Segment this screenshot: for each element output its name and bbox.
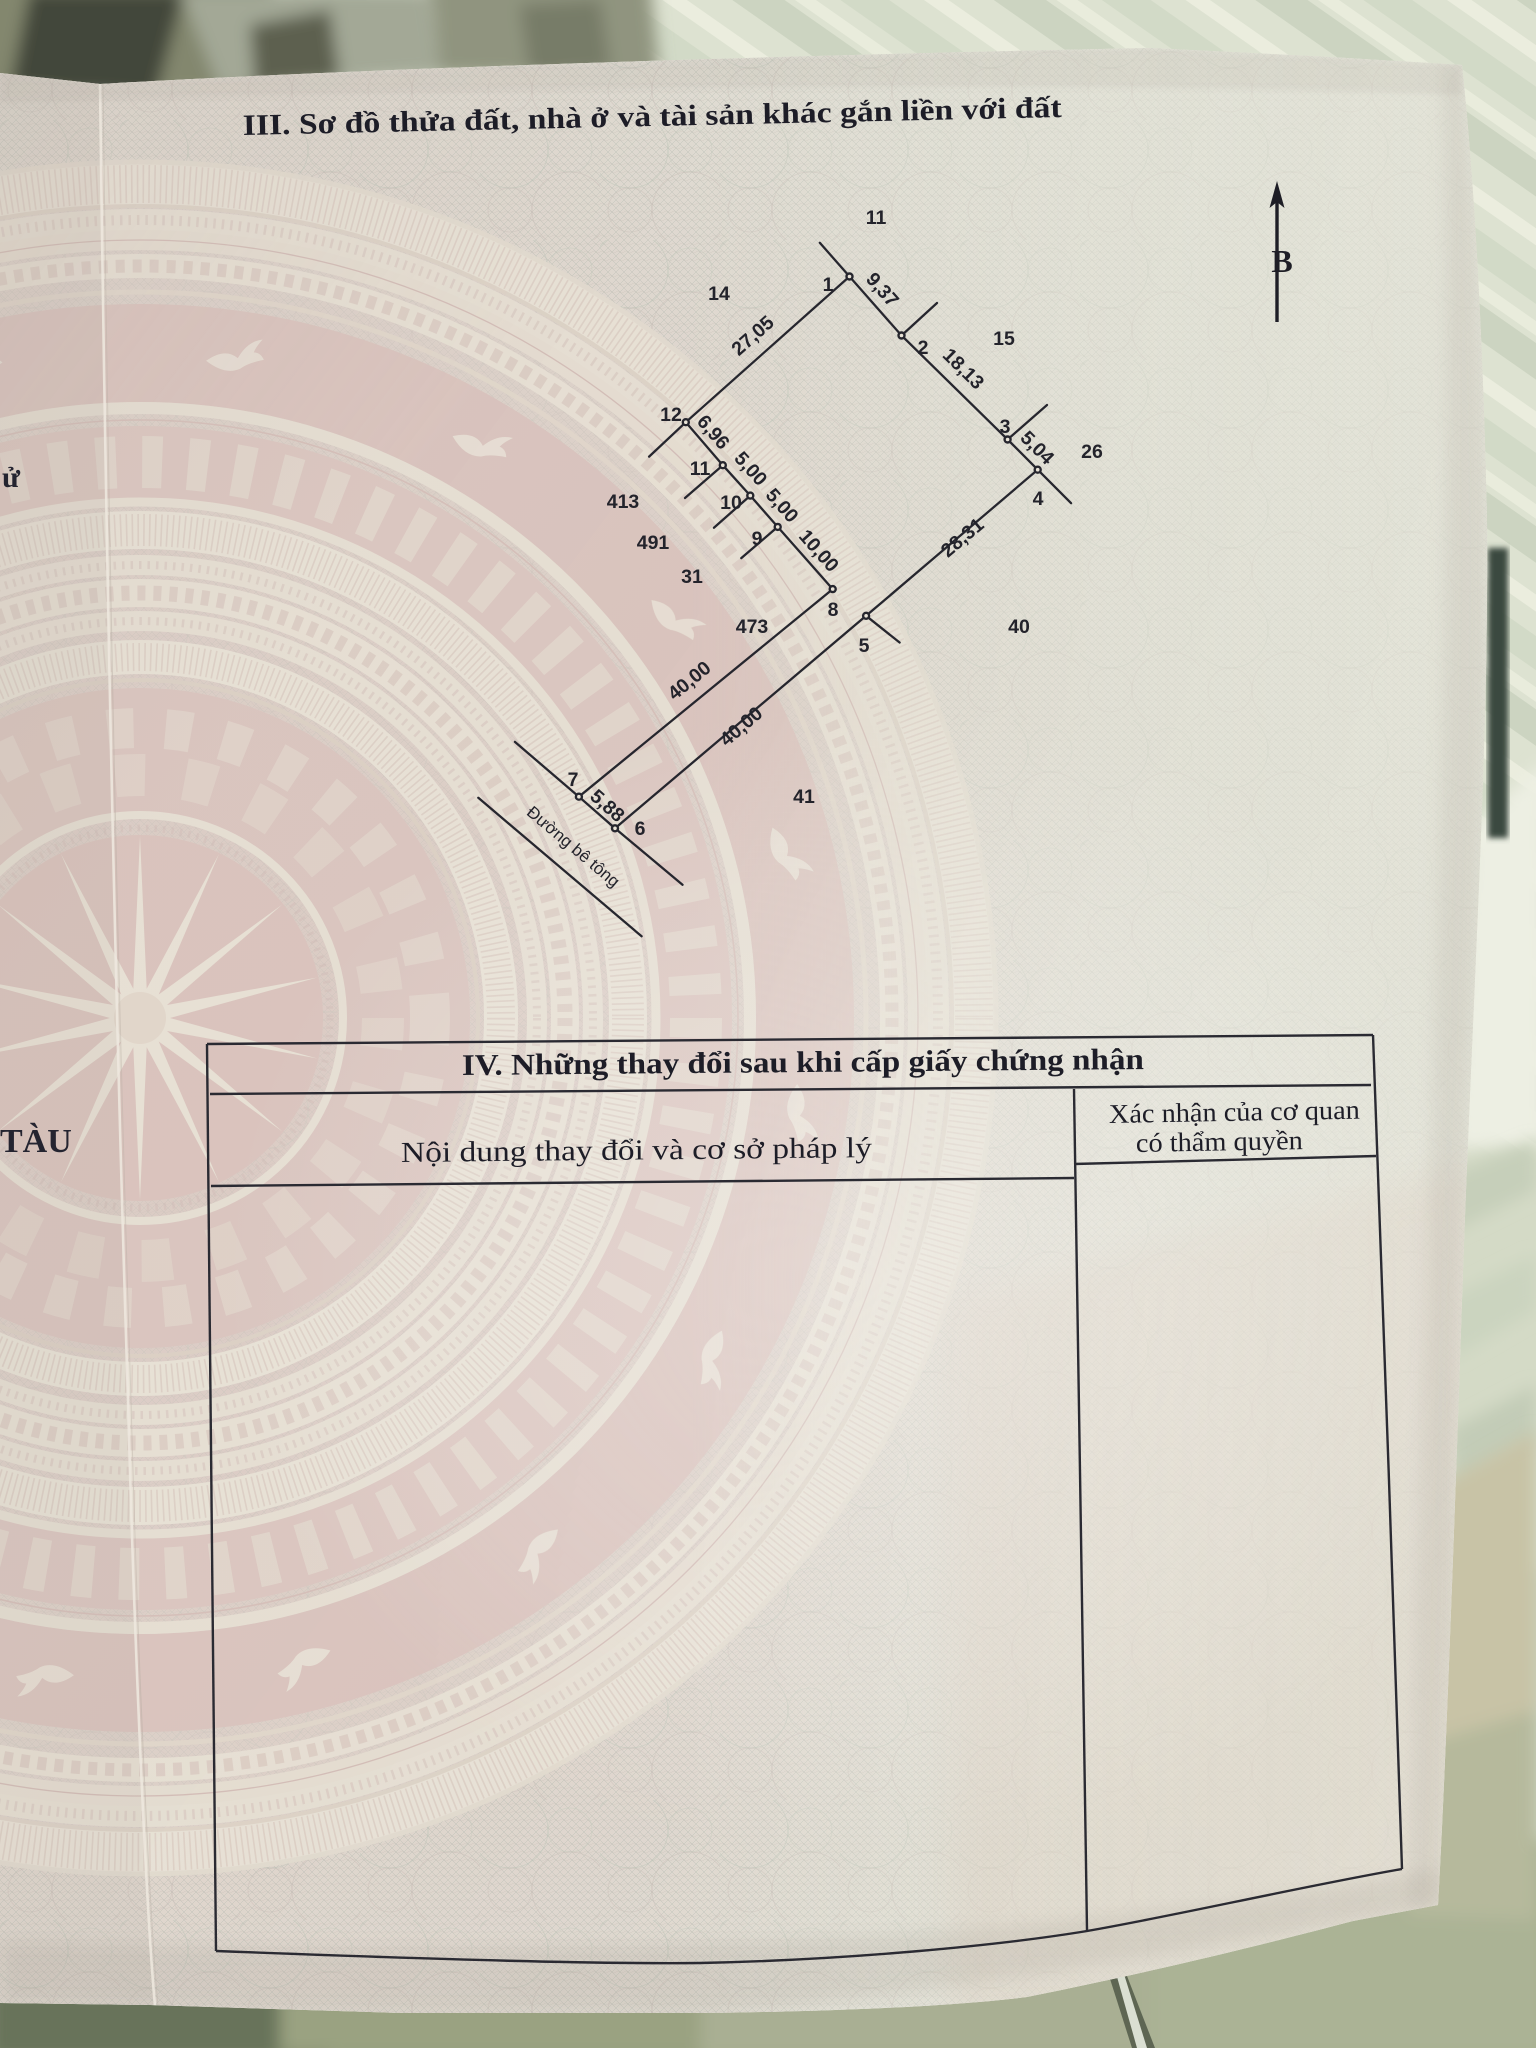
svg-text:473: 473 <box>736 616 769 638</box>
svg-text:40: 40 <box>1008 616 1030 638</box>
svg-text:6: 6 <box>635 818 646 840</box>
svg-text:15: 15 <box>993 328 1015 350</box>
svg-text:11: 11 <box>690 458 711 480</box>
svg-text:1: 1 <box>823 274 834 296</box>
svg-text:31: 31 <box>681 566 703 588</box>
svg-text:Nội dung thay đổi và cơ sở phá: Nội dung thay đổi và cơ sở pháp lý <box>401 1132 873 1169</box>
svg-text:B: B <box>1271 243 1292 279</box>
svg-text:11: 11 <box>866 207 887 229</box>
svg-text:14: 14 <box>708 283 730 305</box>
svg-text:IV. Những thay đổi sau khi cấp: IV. Những thay đổi sau khi cấp giấy chứn… <box>462 1043 1145 1082</box>
svg-text:491: 491 <box>637 532 670 554</box>
svg-text:3: 3 <box>1000 416 1011 438</box>
svg-text:8: 8 <box>828 599 839 621</box>
svg-text:TÀU: TÀU <box>0 1123 72 1160</box>
svg-text:Xác nhận của cơ quan: Xác nhận của cơ quan <box>1109 1095 1361 1129</box>
svg-text:ử: ử <box>2 461 21 494</box>
svg-text:10: 10 <box>720 492 742 514</box>
svg-text:9: 9 <box>752 528 763 550</box>
svg-text:12: 12 <box>660 404 682 426</box>
svg-text:5: 5 <box>859 635 870 657</box>
svg-text:413: 413 <box>607 491 640 513</box>
svg-text:7: 7 <box>568 769 579 791</box>
svg-text:2: 2 <box>918 337 929 359</box>
svg-text:4: 4 <box>1033 488 1044 510</box>
svg-text:có thẩm quyền: có thẩm quyền <box>1136 1125 1304 1158</box>
svg-text:41: 41 <box>793 786 815 808</box>
svg-text:26: 26 <box>1081 441 1103 463</box>
